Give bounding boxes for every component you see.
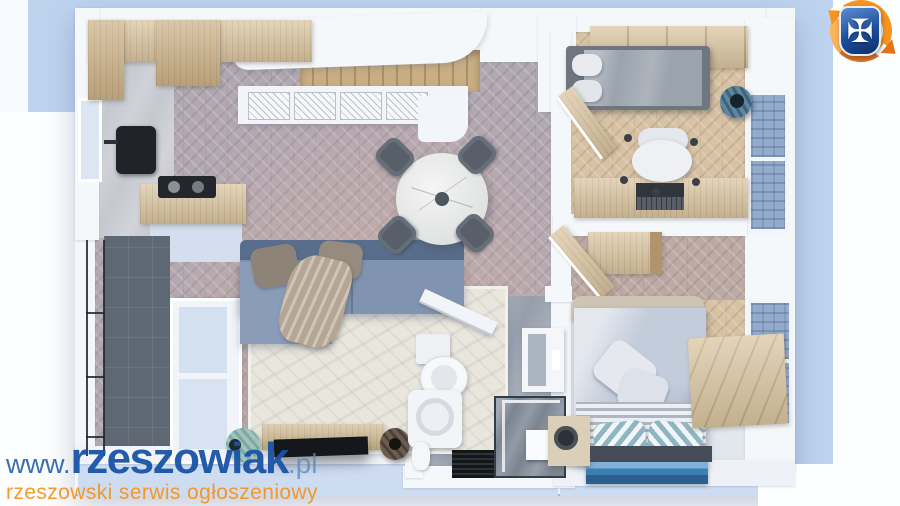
washing-machine (408, 390, 462, 448)
kitchen-sink (116, 126, 156, 174)
logo-shield: ✠ (839, 6, 881, 56)
speaker (554, 426, 578, 450)
chair-wheel (652, 188, 660, 196)
bed-foot-platform (582, 446, 712, 462)
balcony-floor (104, 236, 170, 458)
washer-drum (416, 398, 454, 436)
vanity-mirror (528, 334, 546, 386)
watermark-url-suffix: .pl (288, 448, 318, 480)
laptop-screen (636, 183, 684, 197)
office-chair-seat (632, 140, 692, 182)
toilet-seat (431, 365, 457, 391)
watermark-tagline: rzeszowski serwis ogłoszeniowy (6, 481, 326, 505)
toilet-brush (412, 442, 430, 470)
background-white-right (833, 0, 900, 506)
balcony-railing-frame (86, 240, 88, 456)
kitchen-corner-cabinet (156, 20, 220, 86)
bathroom-vanity (522, 328, 564, 392)
cooktop-pot (192, 181, 204, 193)
picture-frame (294, 92, 336, 120)
office-window-pane-bottom (751, 161, 785, 229)
balcony-railing-bar (86, 376, 105, 378)
shower-glass-edge (502, 402, 505, 472)
watermark-url-main: rzeszowiak (71, 434, 288, 484)
decor-vase-dark (380, 428, 410, 460)
office-window-pane-top (751, 95, 785, 157)
pillow (572, 54, 602, 76)
balcony-railing-frame (103, 240, 105, 456)
picture-frame (340, 92, 382, 120)
cooktop (158, 176, 216, 198)
balcony-railing-bar (86, 312, 105, 314)
logo-cross: ✠ (841, 8, 879, 54)
kitchen-tall-cabinet (88, 20, 124, 100)
balcony-door-pane (179, 307, 227, 373)
bedside-rug-blue (586, 462, 708, 484)
bathroom-top-wall-right (545, 286, 572, 302)
background-white-topleft (0, 0, 28, 112)
vanity-faucet (552, 350, 560, 370)
window-bench-chest (688, 334, 789, 429)
floor-plan-render: ✠ www.rzeszowiak.pl rzeszowski serwis og… (0, 0, 900, 506)
vase-opening (730, 94, 744, 108)
vase-opening (389, 438, 401, 450)
hall-dresser-side (650, 232, 662, 274)
chair-wheel (690, 138, 698, 146)
plant-vase (720, 86, 752, 118)
floor-grate (452, 450, 496, 478)
chair-wheel (624, 134, 632, 142)
cooktop-pot (168, 181, 180, 193)
nightstand (548, 416, 590, 466)
laptop-keyboard (636, 197, 684, 210)
laptop (636, 183, 684, 210)
wall-return (418, 96, 468, 142)
chair-wheel (620, 176, 628, 184)
watermark-url-prefix: www. (6, 449, 71, 480)
watermark: www.rzeszowiak.pl rzeszowski serwis ogło… (6, 434, 326, 505)
office-window-frame (747, 90, 789, 234)
kitchen-window (78, 98, 102, 182)
shower-glass-top (502, 400, 560, 403)
sink-faucet (104, 140, 118, 144)
rzeszowiak-shield-logo: ✠ (822, 0, 898, 72)
chair-wheel (692, 178, 700, 186)
watermark-url: www.rzeszowiak.pl (6, 434, 326, 484)
table-center (435, 192, 449, 206)
picture-frame (248, 92, 290, 120)
